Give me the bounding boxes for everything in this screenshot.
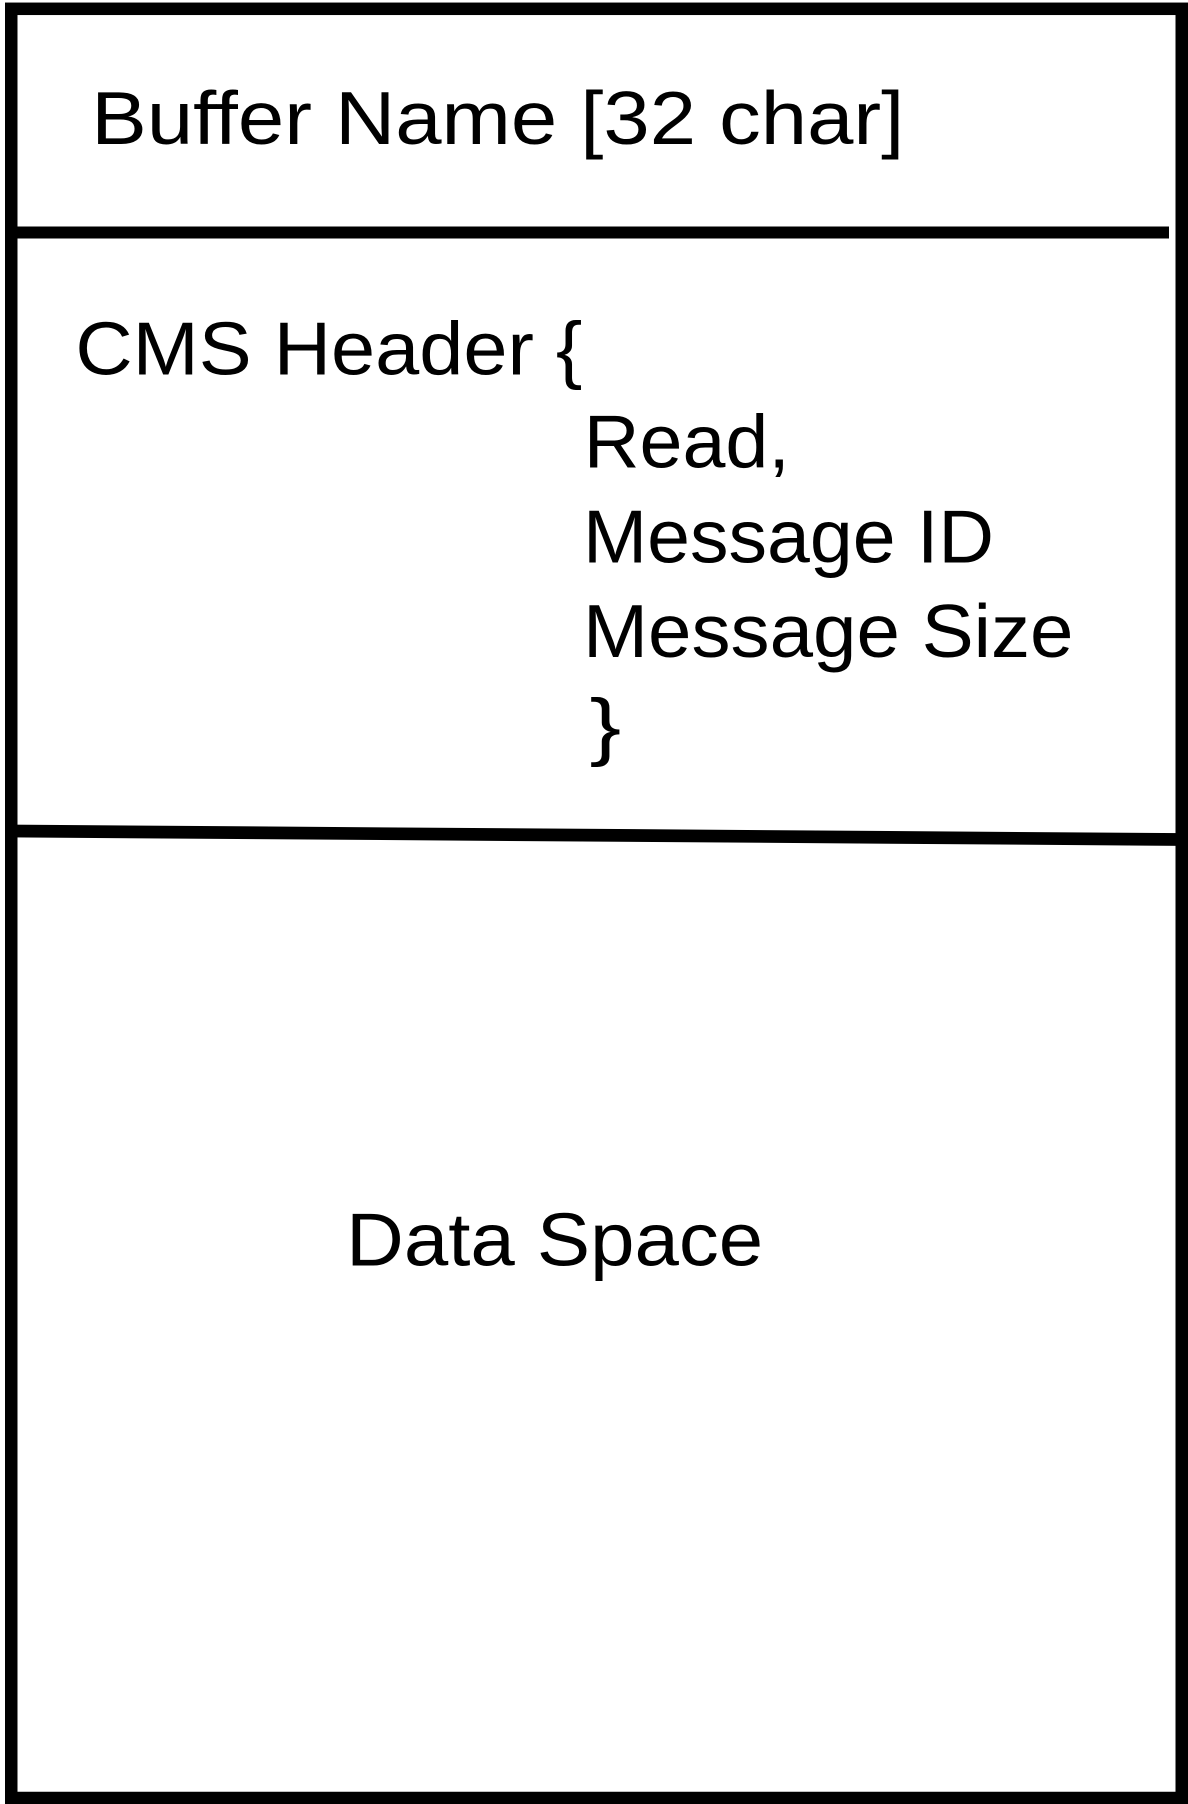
svg-text:}: } [590, 684, 622, 768]
svg-text:Buffer Name [32 char]: Buffer Name [32 char] [91, 76, 904, 160]
svg-text:CMS Header {: CMS Header { [75, 307, 582, 391]
svg-text:Data Space: Data Space [346, 1198, 763, 1282]
svg-text:Read,: Read, [584, 400, 790, 484]
svg-text:Message ID: Message ID [583, 494, 994, 578]
svg-text:Message Size: Message Size [583, 589, 1074, 673]
